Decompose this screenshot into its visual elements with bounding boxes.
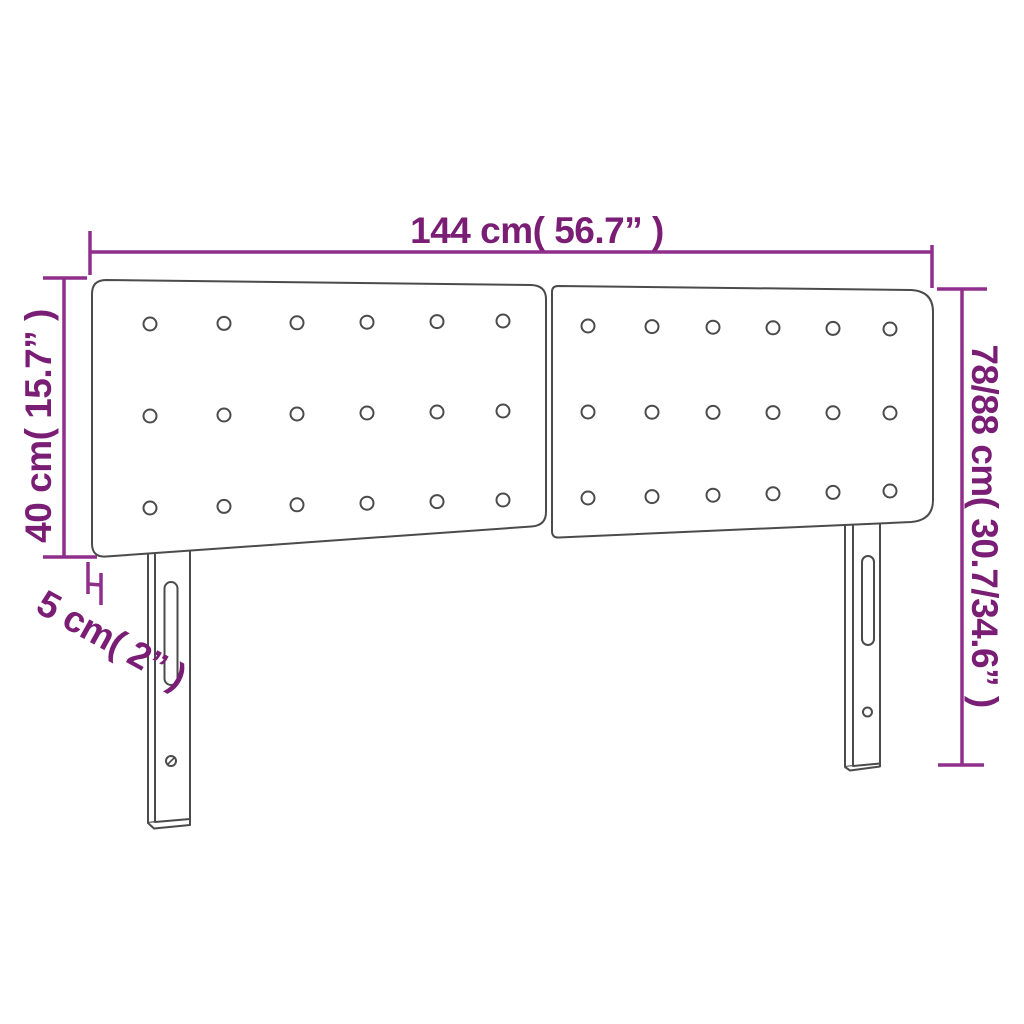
tufting-button	[582, 492, 595, 505]
headboard-right-panel	[552, 286, 933, 538]
tufting-button	[707, 321, 720, 334]
diagram-canvas: 144 cm( 56.7” ) 40 cm( 15.7” ) 78/88 cm(…	[0, 0, 1024, 1024]
tufting-button	[144, 502, 157, 515]
tufting-button	[827, 486, 840, 499]
tufting-button	[361, 407, 374, 420]
tufting-button	[218, 500, 231, 513]
tufting-button	[291, 316, 304, 329]
headboard-left-panel	[92, 280, 546, 557]
width-label: 144 cm( 56.7” )	[410, 210, 664, 251]
tufting-button	[884, 485, 897, 498]
right-panel-outline	[552, 286, 933, 538]
tufting-button	[827, 406, 840, 419]
tufting-button	[361, 316, 374, 329]
tufting-button	[291, 498, 304, 511]
panel-height-label: 40 cm( 15.7” )	[18, 309, 59, 543]
tufting-button	[431, 495, 444, 508]
tufting-button	[497, 405, 510, 418]
right-leg-side-face	[845, 521, 853, 767]
tufting-button	[431, 406, 444, 419]
tufting-button	[646, 320, 659, 333]
tufting-button	[497, 315, 510, 328]
total-height-label: 78/88 cm( 30.7/34.6” )	[964, 344, 1005, 707]
tufting-button	[767, 487, 780, 500]
tufting-button	[767, 406, 780, 419]
headboard-dimension-diagram: 144 cm( 56.7” ) 40 cm( 15.7” ) 78/88 cm(…	[0, 0, 1024, 1024]
left-panel-outline	[92, 280, 546, 557]
right-leg	[845, 520, 880, 771]
tufting-button	[361, 497, 374, 510]
tufting-button	[707, 406, 720, 419]
tufting-button	[767, 321, 780, 334]
tufting-button	[582, 320, 595, 333]
tufting-button	[218, 317, 231, 330]
tufting-button	[431, 315, 444, 328]
tufting-button	[646, 490, 659, 503]
tufting-button	[707, 489, 720, 502]
tufting-button	[582, 406, 595, 419]
tufting-button	[884, 323, 897, 336]
tufting-button	[291, 408, 304, 421]
tufting-button	[884, 407, 897, 420]
depth-dimension-marker	[88, 562, 101, 605]
tufting-button	[646, 406, 659, 419]
tufting-button	[497, 494, 510, 507]
tufting-button	[144, 318, 157, 331]
tufting-button	[144, 410, 157, 423]
right-leg-screw-hole	[863, 708, 872, 717]
tufting-button	[827, 322, 840, 335]
right-leg-slot	[862, 556, 874, 645]
tufting-button	[218, 409, 231, 422]
